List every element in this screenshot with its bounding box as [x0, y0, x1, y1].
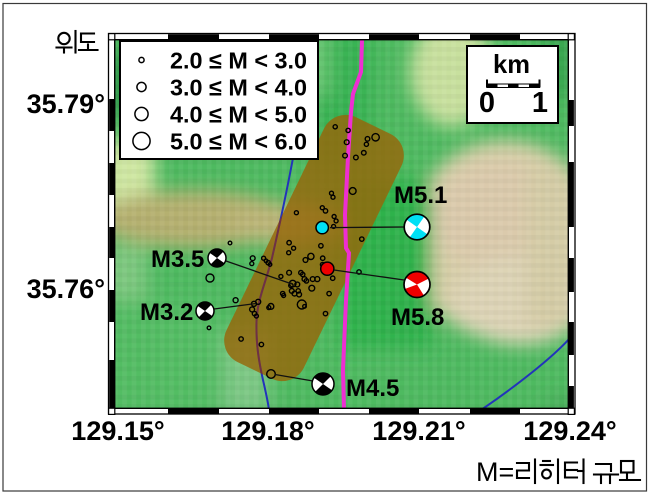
svg-text:4.0 ≤ M < 5.0: 4.0 ≤ M < 5.0 [170, 102, 307, 128]
svg-text:3.0 ≤ M < 4.0: 3.0 ≤ M < 4.0 [170, 75, 307, 101]
svg-text:km: km [493, 49, 530, 79]
svg-text:M5.1: M5.1 [394, 182, 447, 209]
svg-text:M3.2: M3.2 [140, 299, 193, 326]
svg-text:M3.5: M3.5 [151, 246, 204, 273]
svg-text:M=: M= [476, 457, 514, 487]
svg-text:2.0 ≤ M < 3.0: 2.0 ≤ M < 3.0 [170, 48, 307, 74]
svg-text:1: 1 [532, 87, 548, 119]
svg-text:129.24°: 129.24° [523, 416, 616, 446]
svg-text:129.15°: 129.15° [71, 416, 164, 446]
svg-text:129.21°: 129.21° [372, 416, 465, 446]
svg-text:129.18°: 129.18° [221, 416, 314, 446]
svg-text:M4.5: M4.5 [346, 375, 399, 402]
svg-text:35.79°: 35.79° [27, 89, 105, 119]
svg-text:M5.8: M5.8 [391, 304, 444, 331]
svg-text:5.0 ≤ M < 6.0: 5.0 ≤ M < 6.0 [170, 129, 307, 155]
svg-text:35.76°: 35.76° [27, 274, 105, 304]
svg-text:0: 0 [479, 87, 495, 119]
